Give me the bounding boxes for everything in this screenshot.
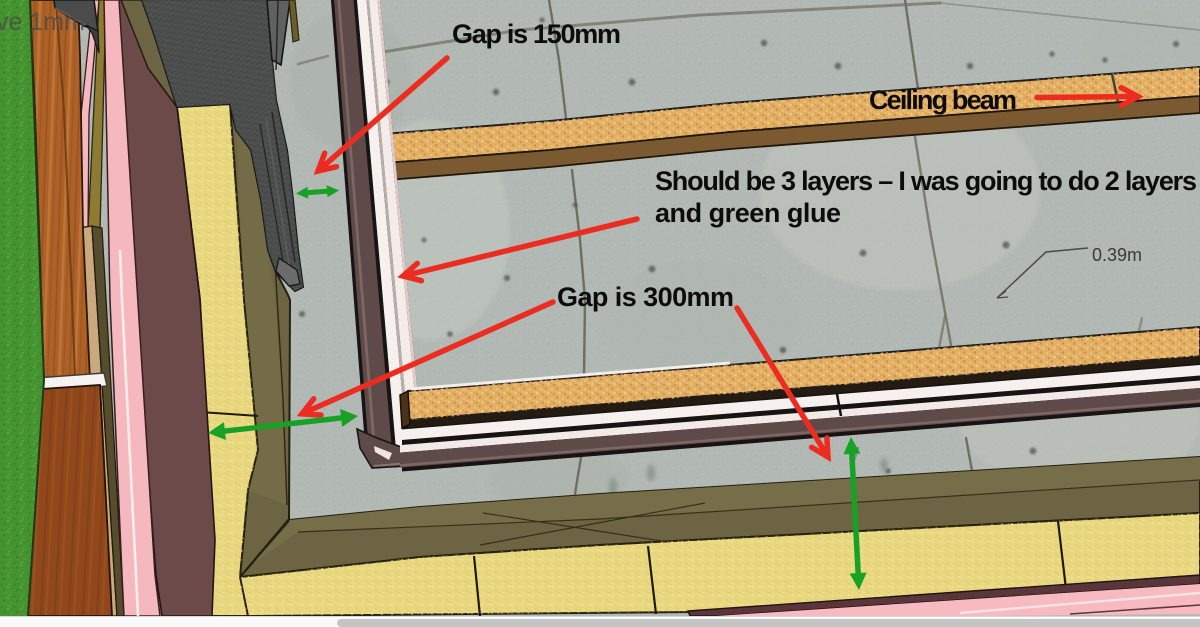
svg-text:Gap is 300mm: Gap is 300mm xyxy=(557,282,734,312)
svg-text:ve 1mm: ve 1mm xyxy=(0,8,85,36)
svg-text:0.39m: 0.39m xyxy=(1092,245,1142,265)
svg-text:Gap is 150mm: Gap is 150mm xyxy=(452,19,621,49)
svg-text:and green glue: and green glue xyxy=(655,198,841,228)
svg-text:Ceiling beam: Ceiling beam xyxy=(869,85,1017,115)
svg-text:Should be 3 layers – I was goi: Should be 3 layers – I was going to do 2… xyxy=(655,166,1197,196)
